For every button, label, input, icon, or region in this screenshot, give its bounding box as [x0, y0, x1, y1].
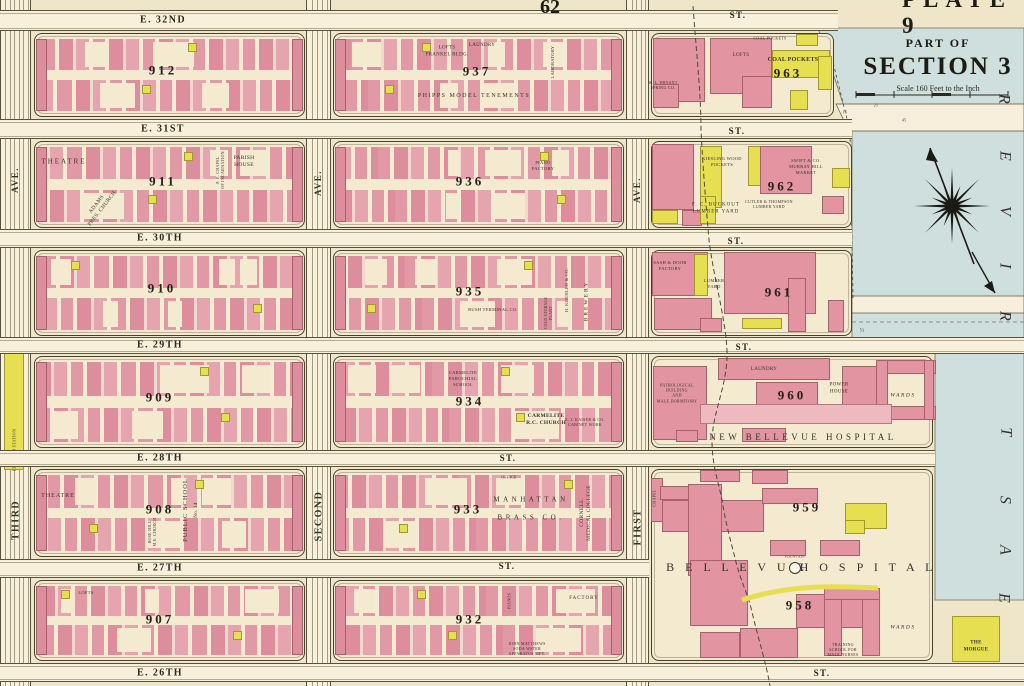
poi-label: COAL POCKETS — [768, 57, 819, 65]
poi-label: SWIFT & CO. MURRAY HILL MARKET — [789, 158, 823, 176]
street-name-label: E. 29TH — [137, 340, 183, 351]
block-number-936: 936 — [456, 174, 485, 191]
poi-label: PIANO FACTORY — [532, 160, 554, 172]
street-suffix-label: ST. — [730, 10, 747, 20]
street-suffix-label: ST. — [814, 668, 831, 678]
poi-label: WARDS — [890, 392, 915, 399]
poi-label: PATHOLOGICAL BUILDING AND MALE DORMITORY — [657, 383, 697, 404]
courtyard — [85, 42, 109, 67]
street-32-band — [0, 10, 838, 31]
street-suffix-label: ST. — [736, 342, 753, 352]
courtyard — [352, 42, 382, 67]
frame-building — [557, 195, 566, 204]
poi-label: I — [994, 263, 1015, 269]
building-footprint — [845, 520, 865, 534]
block-number-958: 958 — [786, 598, 815, 615]
block-number-909: 909 — [146, 390, 175, 407]
frame-building — [385, 85, 394, 94]
street-guide-line — [0, 13, 838, 14]
building-footprint — [832, 168, 850, 188]
poi-label: WARDS — [890, 624, 915, 631]
courtyard — [493, 193, 525, 219]
poi-label: COAL POCKETS — [753, 35, 786, 40]
building-footprint — [676, 430, 698, 442]
poi-label: PHIPPS MODEL TENEMENTS — [418, 93, 530, 101]
courtyard — [245, 589, 280, 613]
avenue-suffix-label: AVE. — [10, 167, 22, 193]
corner-buildings — [335, 586, 346, 656]
poi-label: 21 — [874, 102, 879, 107]
avenue-name-label: FIRST — [631, 509, 644, 546]
corner-buildings — [611, 256, 622, 330]
scale-note: Scale 160 Feet to the Inch — [845, 84, 1024, 93]
poi-label: CUTLER & THOMPSON LUMBER YARD — [745, 199, 793, 209]
street-name-label: E. 32ND — [140, 15, 186, 26]
poi-label: B E L L E V U E — [666, 560, 808, 576]
poi-label: CHAPEL — [651, 489, 656, 506]
street-suffix-label: ST. — [728, 236, 745, 246]
courtyard — [75, 478, 96, 505]
courtyard — [448, 150, 461, 176]
poi-label: H O S P I T A L — [800, 560, 937, 576]
poi-label: R — [994, 311, 1015, 321]
lot-strip — [43, 80, 296, 111]
courtyard — [103, 301, 118, 327]
street-guide-line — [0, 245, 852, 246]
corner-buildings — [335, 475, 346, 551]
block-number-934: 934 — [456, 394, 485, 411]
building-footprint — [952, 616, 1000, 662]
street-name-label: E. 28TH — [137, 453, 183, 464]
courtyard — [354, 589, 375, 613]
poi-label: E — [994, 151, 1015, 161]
poi-label: E. J. KAISER & CO. CABINET WORK — [565, 417, 605, 427]
poi-label: LOFTS — [78, 590, 93, 596]
block-number-911: 911 — [149, 174, 177, 191]
building-footprint — [828, 300, 844, 332]
corner-buildings — [611, 475, 622, 551]
lot-strip — [43, 408, 296, 442]
street-name-label: E. 26TH — [137, 668, 183, 679]
building-footprint — [700, 404, 892, 424]
page-number: 62 — [540, 0, 560, 19]
frame-building — [564, 480, 573, 489]
courtyard — [242, 365, 270, 393]
courtyard — [446, 193, 459, 219]
block-number-932: 932 — [456, 612, 485, 629]
corner-buildings — [335, 147, 346, 222]
poi-label: PARISH HOUSE — [234, 155, 255, 169]
atlas-map-canvas: AVE.THIRDELEVATED STATIONAVE.SECONDAVE.F… — [0, 0, 1024, 686]
courtyard — [168, 301, 182, 327]
block-number-961: 961 — [765, 285, 794, 302]
poi-label: THE MORGUE — [964, 641, 989, 654]
building-footprint — [820, 540, 860, 556]
poi-label: T — [995, 427, 1016, 436]
poi-label: 53 — [860, 327, 865, 332]
building-footprint — [796, 34, 818, 46]
poi-label: V — [994, 206, 1015, 216]
street-suffix-label: ST. — [500, 453, 517, 463]
block-number-935: 935 — [456, 284, 485, 301]
poi-label: PIANOS — [506, 593, 511, 609]
lot-strip — [342, 190, 615, 222]
frame-building — [142, 85, 151, 94]
frame-building — [417, 590, 426, 599]
courtyard — [51, 411, 78, 439]
building-footprint — [752, 470, 788, 484]
building-footprint — [818, 56, 832, 90]
courtyard — [389, 365, 420, 393]
corner-buildings — [292, 39, 303, 111]
block-number-933: 933 — [454, 502, 483, 519]
frame-building — [501, 367, 510, 376]
poi-label: BREWERY — [583, 281, 590, 322]
street-30-band — [0, 229, 852, 248]
street-guide-line — [0, 122, 852, 123]
poi-label: KIESLING WOOD POCKETS — [702, 156, 742, 168]
poi-label: JOHN MATTHEWS SODA WATER APPARATUS MFY. — [508, 641, 545, 657]
frame-building — [184, 152, 193, 161]
poi-label: FACTORY — [569, 596, 599, 603]
lot-strip — [342, 362, 615, 396]
block-number-962: 962 — [768, 179, 797, 196]
building-footprint — [790, 90, 808, 110]
corner-buildings — [335, 39, 346, 111]
corner-buildings — [36, 256, 47, 330]
frame-building — [71, 261, 80, 270]
avenue-name-label: THIRD — [9, 500, 22, 540]
poi-label: SASH & DOOR FACTORY — [653, 260, 686, 272]
frame-building — [188, 43, 197, 52]
poi-label: F. C. BUCKOUT LUMBER YARD — [692, 203, 740, 216]
street-guide-line — [0, 28, 838, 29]
street-name-label: E. 27TH — [137, 563, 183, 574]
poi-label: BRASS CO. — [498, 513, 565, 522]
section-title: SECTION 3 — [845, 53, 1024, 81]
building-footprint — [652, 144, 694, 210]
poi-label: LAUNDRY — [751, 367, 777, 374]
courtyard — [145, 589, 159, 613]
poi-label: No. 14 — [194, 502, 201, 517]
courtyard — [51, 259, 70, 285]
block-number-960: 960 — [778, 388, 807, 405]
compass-needle — [930, 148, 974, 264]
poi-label: 45 — [902, 117, 907, 122]
frame-building — [221, 413, 230, 422]
poi-label: S — [994, 496, 1015, 504]
street-guide-line — [0, 562, 649, 563]
courtyard — [222, 521, 246, 548]
corner-buildings — [292, 147, 303, 222]
street-suffix-label: ST. — [729, 126, 746, 136]
building-footprint — [862, 594, 880, 656]
frame-building — [516, 413, 525, 422]
poi-label: R — [993, 94, 1014, 104]
frame-building — [148, 195, 157, 204]
magnetic-needle-head — [984, 281, 995, 293]
street-27-band — [0, 559, 649, 578]
poi-label: THEATRE — [41, 157, 86, 166]
poi-label: CARMELITE R.C. CHURCH — [526, 413, 566, 427]
poi-label: E — [993, 593, 1014, 603]
street-guide-line — [0, 464, 935, 465]
block-number-937: 937 — [463, 64, 492, 81]
courtyard — [348, 365, 375, 393]
poi-label: LAUNDRY — [469, 43, 495, 50]
frame-building — [253, 304, 262, 313]
courtyard — [100, 83, 135, 108]
courtyard — [240, 259, 256, 285]
corner-buildings — [611, 362, 622, 441]
courtyard — [365, 259, 387, 285]
corner-buildings — [335, 362, 346, 441]
building-footprint — [742, 318, 782, 329]
poi-label: CARMELITE PAROCHIAL SCHOOL — [449, 370, 477, 388]
block-number-910: 910 — [148, 281, 177, 298]
poi-label: LOFTS — [733, 53, 750, 60]
corner-buildings — [292, 256, 303, 330]
building-footprint — [652, 210, 678, 224]
compass-needle-head — [926, 148, 938, 162]
avenue-name-label: SECOND — [312, 491, 325, 542]
frame-building — [89, 524, 98, 533]
frame-building — [448, 631, 457, 640]
courtyard — [202, 478, 231, 505]
poi-label: THEATRE — [41, 493, 75, 501]
poi-label: MANHATTAN — [493, 495, 568, 504]
corner-buildings — [36, 39, 47, 111]
corner-buildings — [36, 362, 47, 441]
lot-strip — [43, 625, 296, 655]
street-guide-line — [0, 136, 852, 137]
corner-buildings — [335, 256, 346, 330]
poi-label: NEW BELLEVUE HOSPITAL — [709, 432, 897, 444]
poi-label: CORNELL MEDICAL COLLEGE — [579, 485, 593, 541]
street-guide-line — [0, 679, 1024, 680]
poi-label: LOFTS FRANKEL BLDG. — [426, 46, 469, 59]
street-guide-line — [0, 351, 1024, 352]
poi-label: LABORATORY — [550, 46, 556, 79]
frame-building — [367, 304, 376, 313]
street-name-label: E. 30TH — [137, 233, 183, 244]
poi-label: POWER HOUSE — [830, 383, 849, 396]
courtyard — [219, 259, 235, 285]
courtyard — [485, 150, 521, 176]
poi-label: ROSE HILL M.E. CHURCH — [147, 518, 157, 547]
building-footprint — [770, 540, 806, 556]
street-31-band — [0, 119, 852, 139]
poi-label: LUMBER YARD — [704, 278, 725, 290]
poi-label: OFFICE — [501, 474, 517, 479]
poi-label: 15 — [843, 109, 848, 114]
poi-label: A — [994, 545, 1015, 555]
building-footprint — [700, 470, 740, 482]
courtyard — [202, 83, 230, 108]
magnetic-needle — [972, 252, 995, 293]
courtyard — [132, 411, 163, 439]
poi-label: FOUNTAIN — [785, 555, 805, 560]
avenue-suffix-label: AVE. — [313, 170, 325, 196]
courtyard — [460, 301, 494, 327]
corner-buildings — [611, 39, 622, 111]
courtyard — [415, 259, 437, 285]
corner-buildings — [292, 362, 303, 441]
frame-building — [233, 631, 242, 640]
poi-label: PUBLIC SCHOOL — [182, 478, 190, 542]
frame-building — [200, 367, 209, 376]
poi-label: TRAINING SCHOOL FOR MALE NURSES — [828, 642, 859, 658]
poi-label: H. KOEHLER & CO. — [564, 268, 570, 312]
corner-buildings — [292, 475, 303, 551]
street-name-label: E. 31ST — [141, 124, 185, 135]
corner-buildings — [36, 586, 47, 656]
building-footprint — [824, 588, 880, 600]
building-footprint — [700, 632, 740, 658]
building-footprint — [742, 76, 772, 108]
building-footprint — [822, 196, 844, 214]
street-guide-line — [0, 575, 649, 576]
poi-label: COLD STORAGE PLANT — [544, 297, 554, 329]
block-number-907: 907 — [146, 612, 175, 629]
block-number-963: 963 — [774, 66, 803, 83]
building-footprint — [924, 360, 934, 420]
corner-buildings — [611, 147, 622, 222]
building-footprint — [740, 628, 798, 658]
corner-buildings — [292, 586, 303, 656]
frame-building — [195, 480, 204, 489]
courtyard — [137, 628, 151, 652]
block-number-912: 912 — [149, 63, 178, 80]
frame-building — [524, 261, 533, 270]
section-panel: PART OF SECTION 3 Scale 160 Feet to the … — [845, 36, 1024, 93]
building-footprint — [700, 318, 722, 332]
frame-building — [61, 590, 70, 599]
frame-building — [399, 524, 408, 533]
avenue-suffix-label: AVE. — [632, 177, 644, 203]
corner-buildings — [611, 586, 622, 656]
block-number-908: 908 — [146, 502, 175, 519]
corner-buildings — [36, 475, 47, 551]
street-suffix-label: ST. — [499, 561, 516, 571]
poi-label: P. E. CHAPEL OF INCARNATION — [215, 151, 225, 189]
compass-rose — [914, 168, 990, 244]
poi-label: BUSH TERMINAL CO. — [468, 307, 518, 313]
pier-band-top — [836, 104, 1024, 131]
poi-label: W. L. BRYANT SPRING CO. — [648, 80, 677, 90]
plate-number-corner: PLATE 9 — [902, 0, 1024, 39]
block-number-959: 959 — [793, 500, 822, 517]
street-guide-line — [0, 232, 852, 233]
